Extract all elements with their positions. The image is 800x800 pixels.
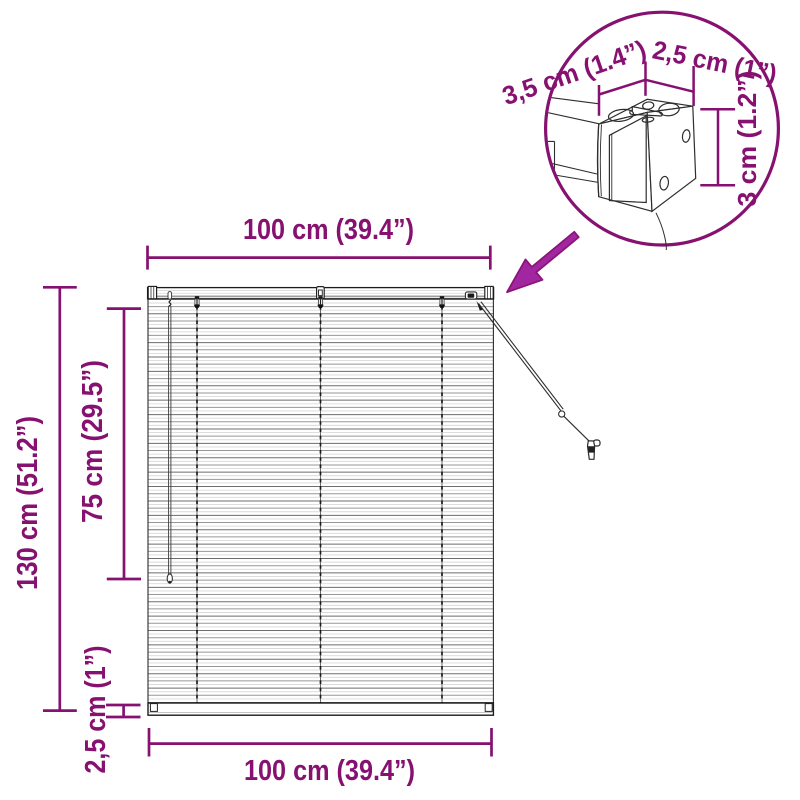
- svg-text:75 cm (29.5”): 75 cm (29.5”): [77, 360, 109, 523]
- svg-text:130 cm (51.2”): 130 cm (51.2”): [12, 416, 44, 590]
- svg-text:100 cm (39.4”): 100 cm (39.4”): [243, 214, 414, 246]
- svg-text:2,5 cm (1”): 2,5 cm (1”): [80, 646, 112, 774]
- svg-text:3 cm (1.2”): 3 cm (1.2”): [732, 71, 762, 207]
- svg-text:100 cm (39.4”): 100 cm (39.4”): [244, 755, 415, 787]
